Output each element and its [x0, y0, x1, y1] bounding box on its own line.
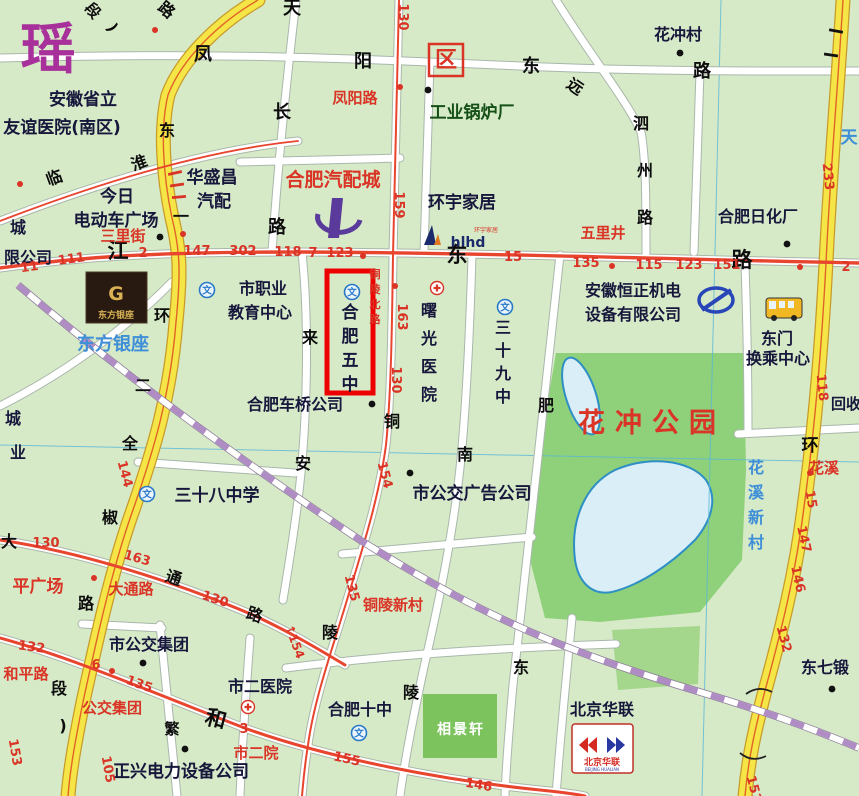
road-label-lu-quanjiao: 路 — [78, 594, 95, 613]
road-label-er-left: 二 — [135, 376, 151, 395]
route-151: 151 — [713, 258, 740, 273]
bus-icon — [766, 298, 802, 321]
road-label-yang: 阳 — [354, 51, 372, 72]
svg-text:文: 文 — [499, 302, 510, 314]
road-label-ling-nanling: 陵 — [403, 683, 420, 702]
svg-text:文: 文 — [346, 287, 357, 299]
poi-anhui-hospital-line1: 安徽省立 — [49, 89, 117, 110]
road-label-duan-bottom: 段 — [51, 679, 68, 698]
road-label-jiao: 椒 — [102, 508, 118, 527]
beijing-hualian-logo: 北京华联 BEIJING HUALIAN — [572, 724, 633, 773]
huanyu-mini-text: 环宇家居 — [474, 226, 498, 234]
route-123-east: 123 — [675, 258, 702, 273]
dotb-marker — [784, 241, 791, 248]
dotr-marker — [797, 264, 803, 270]
poi-huanyu-jiaju: 环宇家居 — [428, 192, 496, 213]
dongfang-yinzuo-logo-text: 东方银座 — [98, 309, 134, 321]
route-123: 123 — [326, 246, 353, 261]
dotr-marker — [360, 253, 366, 259]
route-147: 147 — [183, 244, 210, 259]
label-tongling-xincun: 铜陵新村 — [363, 596, 423, 614]
route-115: 115 — [635, 258, 662, 273]
route-2-west: 2 — [138, 246, 147, 261]
dotb-marker — [829, 686, 836, 693]
road-label-feng: 凤 — [194, 44, 212, 65]
poi-anhui-hospital-line2: 友谊医院(南区) — [3, 117, 121, 138]
route-6: 6 — [91, 658, 100, 673]
poi-dongmen-line1: 东门 — [761, 329, 793, 348]
label-huaxi: 花溪 — [809, 459, 840, 477]
road-label-dong-huan: 东 — [159, 121, 175, 140]
road-label-lu-tianchang: 路 — [268, 216, 287, 238]
school-icon-no10: 文 — [352, 726, 367, 741]
road-label-yi-huan: 一 — [173, 207, 189, 226]
hospital-icon-shuguang — [431, 282, 444, 295]
svg-text:文: 文 — [201, 285, 212, 297]
route-130-top: 130 — [395, 3, 410, 30]
road-label-an: 安 — [295, 454, 311, 473]
poi-shizhiye-line2: 教育中心 — [228, 303, 292, 322]
route-302: 302 — [229, 244, 256, 259]
poi-no10-school: 合肥十中 — [328, 700, 392, 719]
route-11: 11 — [20, 259, 40, 276]
road-label-nan: 南 — [457, 445, 473, 464]
label-tian-partial: 天 — [841, 128, 859, 148]
road-label-dong-changjiang: 东 — [447, 243, 468, 267]
label-qu-district: 区 — [435, 48, 457, 73]
route-163: 163 — [394, 303, 409, 330]
poi-no2-hospital: 市二医院 — [228, 677, 292, 696]
dotb-marker — [157, 234, 164, 241]
poi-huishou: 回收 — [831, 395, 859, 413]
dotb-marker — [182, 746, 189, 753]
label-sanlijie: 三里街 — [100, 227, 145, 245]
dotr-marker — [17, 181, 23, 187]
poi-ye-partial: 业 — [10, 443, 26, 462]
dotb-marker — [369, 401, 376, 408]
hualian-logo-text-en: BEIJING HUALIAN — [585, 767, 619, 772]
dotr-marker — [109, 668, 115, 674]
road-label-fei: 肥 — [538, 396, 554, 415]
poi-zhengxing: 正兴电力设备公司 — [113, 761, 249, 782]
dotr-marker — [397, 84, 403, 90]
label-pingguangchang: 平广场 — [13, 576, 64, 597]
road-label-zhou: 州 — [636, 161, 653, 180]
route-7: 7 — [308, 246, 317, 261]
poi-gongjiao-jituan: 市公交集团 — [109, 635, 189, 654]
label-heping-lu: 和平路 — [3, 665, 49, 683]
school-icon-hefei-no5: 文 — [345, 285, 360, 300]
route-130-datong-w: 130 — [32, 536, 59, 551]
road-label-huan-right: 环 — [802, 436, 819, 456]
route-118-right: 118 — [813, 373, 831, 402]
poi-38-school: 三十八中学 — [175, 485, 260, 506]
poi-cheng-partial-2: 城 — [5, 409, 21, 428]
svg-text:文: 文 — [141, 489, 152, 501]
road-label-da: 大 — [1, 532, 17, 551]
label-shieryuan: 市二院 — [233, 744, 278, 762]
dotr-marker — [392, 283, 398, 289]
poi-gongye-guolu: 工业锅炉厂 — [430, 102, 515, 123]
dotb-marker — [140, 660, 147, 667]
poi-hefei-rihua: 合肥日化厂 — [718, 207, 798, 226]
poi-cheqiao: 合肥车桥公司 — [247, 395, 343, 414]
poi-huachong-cun: 花冲村 — [654, 25, 702, 44]
label-gongjiao-red: 公交集团 — [82, 699, 142, 717]
label-dongfang-yinzuo: 东方银座 — [77, 333, 149, 355]
poi-hengzheng-line2: 设备有限公司 — [585, 305, 681, 324]
dongfang-yinzuo-logo-mark: G — [108, 283, 124, 305]
road-label-chang: 长 — [273, 102, 292, 123]
route-135: 135 — [572, 256, 599, 271]
hospital-icon-no2 — [242, 701, 255, 714]
route-233: 233 — [819, 162, 837, 191]
poi-beijing-hualian: 北京华联 — [570, 700, 634, 719]
dotr-marker — [609, 263, 615, 269]
road-label-dong-fengyang: 东 — [522, 55, 540, 77]
poi-huashengchang-line2: 汽配 — [197, 191, 231, 212]
school-icon-no38: 文 — [140, 487, 155, 502]
road-label-ling-tongling: 陵 — [322, 623, 339, 642]
label-wulijing: 五里井 — [580, 224, 625, 242]
route-118: 118 — [274, 245, 301, 260]
label-yao: 瑶 — [20, 17, 75, 81]
dotb-marker — [677, 50, 684, 57]
road-label-paren-bottom: ) — [59, 716, 66, 735]
svg-text:文: 文 — [353, 728, 364, 740]
label-fengyang-lu: 凤阳路 — [332, 89, 378, 107]
poi-dongqiduan: 东七锻 — [801, 658, 849, 677]
dongfang-yinzuo-logo: G 东方银座 — [86, 272, 147, 323]
dotr-marker — [180, 231, 186, 237]
school-icon-vocational: 文 — [200, 283, 215, 298]
road-label-dong-feidong: 东 — [513, 658, 529, 677]
dotr-marker — [91, 575, 97, 581]
poi-huashengchang-line1: 华盛昌 — [187, 167, 238, 188]
label-qipeicheng: 合肥汽配城 — [285, 168, 380, 191]
poi-cheng-partial-1: 城 — [10, 218, 26, 237]
route-15: 15 — [504, 250, 522, 265]
road-label-huan-left: 环 — [154, 306, 170, 325]
label-huachong-park: 花冲公园 — [578, 408, 726, 439]
map-canvas[interactable]: G 东方银座 hlhd 环宇家居 北京华联 BEIJING HUALIAN 文文… — [0, 0, 859, 796]
school-icon-no39: 文 — [498, 300, 513, 315]
map-viewport[interactable]: G 东方银座 hlhd 环宇家居 北京华联 BEIJING HUALIAN 文文… — [0, 0, 859, 796]
road-label-lai: 来 — [301, 328, 319, 347]
route-3: 3 — [239, 722, 248, 737]
dotb-marker — [425, 87, 432, 94]
label-datong-lu: 大通路 — [108, 580, 154, 598]
poi-hengzheng-line1: 安徽恒正机电 — [585, 281, 681, 300]
road-label-si: 泗 — [633, 114, 649, 133]
road-label-lu-sizhou: 路 — [637, 208, 654, 227]
route-2-east: 2 — [841, 260, 850, 275]
route-159: 159 — [391, 191, 406, 218]
road-label-fan: 繁 — [163, 720, 180, 738]
poi-gongjiao-ad: 市公交广告公司 — [413, 483, 532, 504]
poi-dongmen-line2: 换乘中心 — [746, 349, 810, 368]
route-130-mid: 130 — [388, 366, 403, 393]
route-15-right: 15 — [801, 489, 819, 509]
road-label-quan: 全 — [121, 434, 139, 453]
road-label-lu-fengyang: 路 — [693, 60, 712, 82]
label-xiangjingxuan: 相景轩 — [437, 721, 485, 738]
dotb-marker — [407, 470, 414, 477]
road-label-tian: 天 — [283, 0, 302, 19]
dotr-marker — [152, 27, 158, 33]
poi-shizhiye-line1: 市职业 — [239, 279, 287, 298]
poi-jinri-line1: 今日 — [100, 186, 134, 207]
road-label-tong: 铜 — [384, 412, 400, 431]
